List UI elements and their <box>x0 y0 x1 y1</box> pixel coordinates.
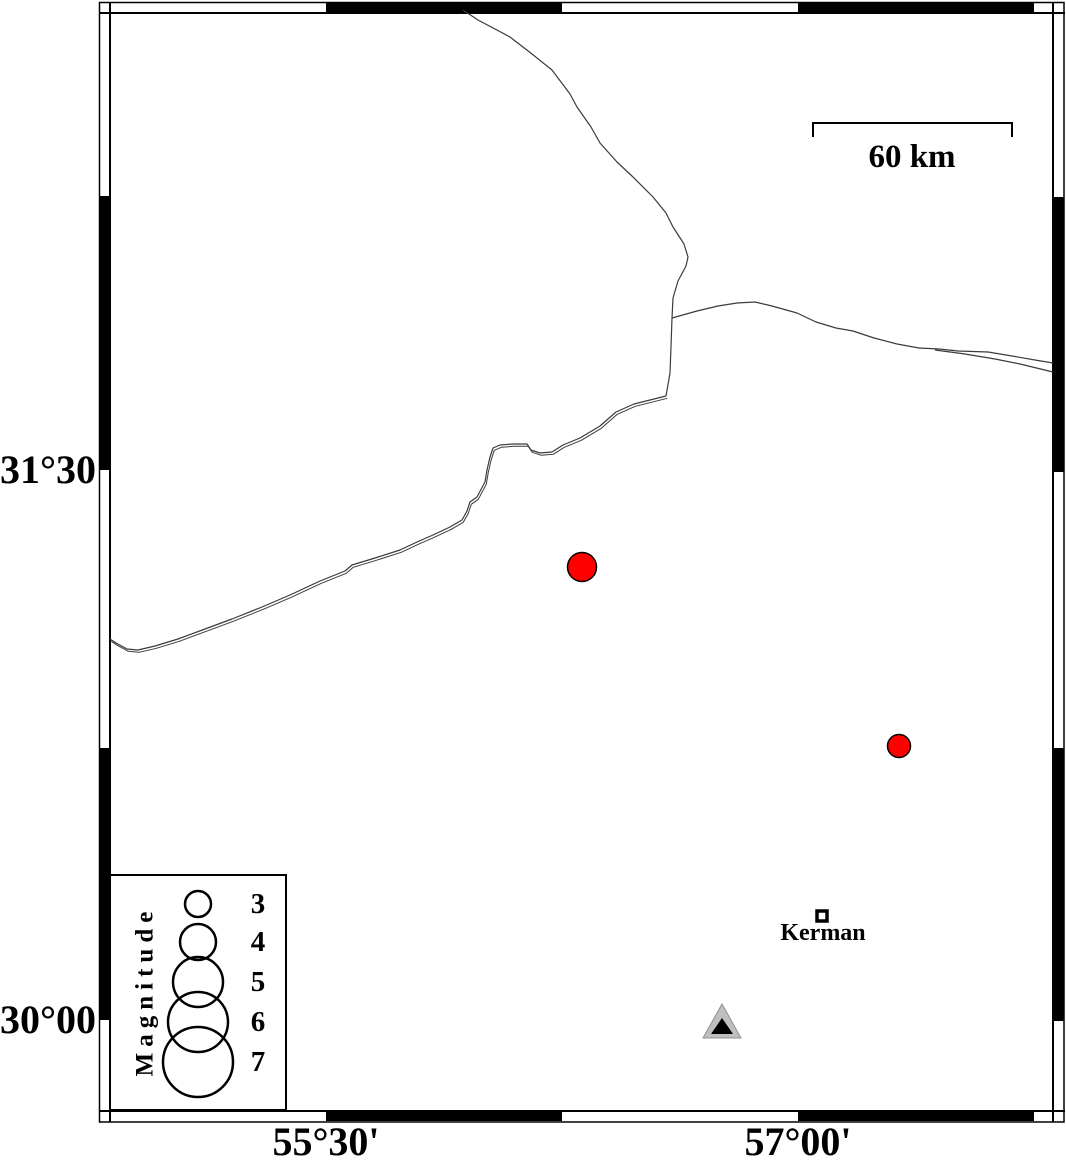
scale-bar-label: 60 km <box>812 139 1012 175</box>
legend-title: Magnitude <box>133 906 158 1077</box>
lon-label-55-30: 55°30' <box>216 1122 436 1160</box>
earthquake-marker-2 <box>888 735 911 758</box>
boundary-north <box>463 10 688 396</box>
boundary-southwest <box>110 396 666 650</box>
legend-magnitude-4: 4 <box>238 924 278 960</box>
boundary-east <box>672 302 1053 363</box>
scale-bar <box>813 123 1012 137</box>
legend-magnitude-6: 6 <box>238 1004 278 1040</box>
frame-tick-top <box>798 3 1034 13</box>
lat-label-31-30: 31°30' <box>0 446 90 494</box>
legend-magnitude-3: 3 <box>238 886 278 922</box>
earthquake-marker-1 <box>568 553 597 582</box>
frame-tick-left <box>100 748 110 1020</box>
lon-label-57-00: 57°00' <box>688 1122 908 1160</box>
frame-tick-right <box>1054 197 1064 472</box>
boundary-southwest-twin <box>111 398 667 652</box>
frame-tick-right <box>1054 748 1064 1021</box>
legend-magnitude-5: 5 <box>238 964 278 1000</box>
lat-label-30-00: 30°00' <box>0 996 90 1044</box>
legend-magnitude-7: 7 <box>238 1044 278 1080</box>
frame-tick-top <box>326 3 562 13</box>
map-figure: 31°30' 30°00' 55°30' 57°00' 60 km Kerman… <box>0 0 1066 1160</box>
frame-tick-left <box>100 196 110 470</box>
city-label-kerman: Kerman <box>723 921 923 945</box>
